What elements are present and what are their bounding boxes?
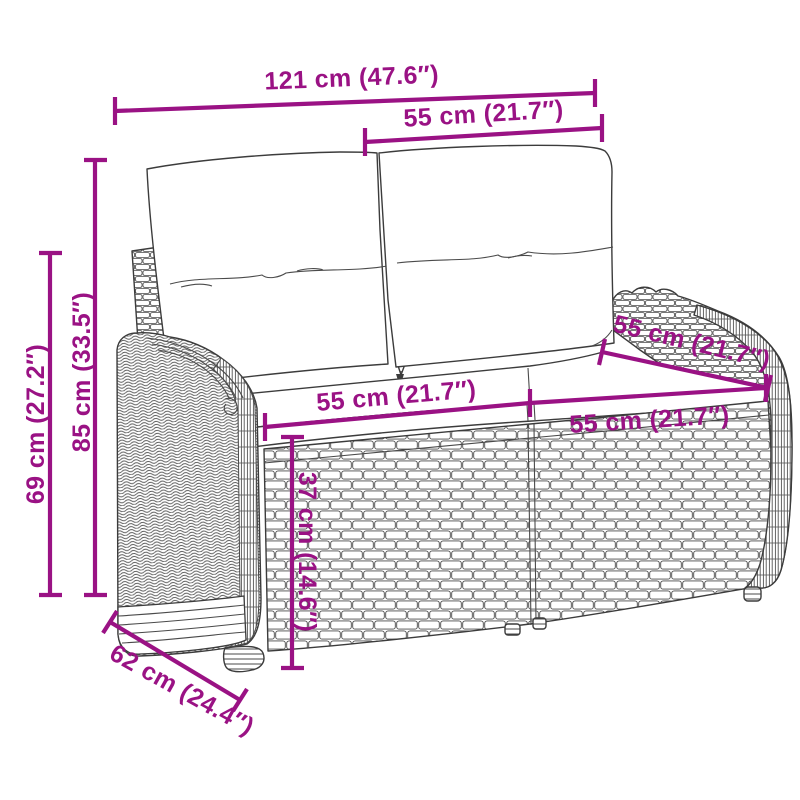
- base: [264, 401, 771, 651]
- dim-overall-width-label: 121 cm (47.6″): [264, 60, 440, 95]
- bench-dimension-illustration: 121 cm (47.6″) 55 cm (21.7″) 85 cm (33.5…: [0, 0, 800, 800]
- product-dimension-diagram: 121 cm (47.6″) 55 cm (21.7″) 85 cm (33.5…: [0, 0, 800, 800]
- back-cushion-right: [379, 145, 614, 367]
- base-front-panel: [264, 401, 771, 651]
- dim-armrest-height-label: 69 cm (27.2″): [22, 344, 50, 504]
- left-armrest: [117, 333, 264, 672]
- left-armrest-sled-foot: [224, 646, 264, 671]
- dim-seat-height-label: 37 cm (14.6″): [293, 472, 321, 632]
- dim-backrest-width-line: [365, 128, 602, 142]
- dim-armrest-height: 69 cm (27.2″): [22, 253, 62, 595]
- back-cushions: [147, 145, 614, 387]
- dim-overall-height: 85 cm (33.5″): [68, 160, 107, 595]
- dim-overall-depth-tick-back: [103, 611, 117, 633]
- foot-right-of-seam: [533, 618, 546, 629]
- right-foot: [744, 587, 761, 601]
- dim-overall-height-label: 85 cm (33.5″): [68, 292, 96, 452]
- foot-left-of-seam: [505, 624, 520, 635]
